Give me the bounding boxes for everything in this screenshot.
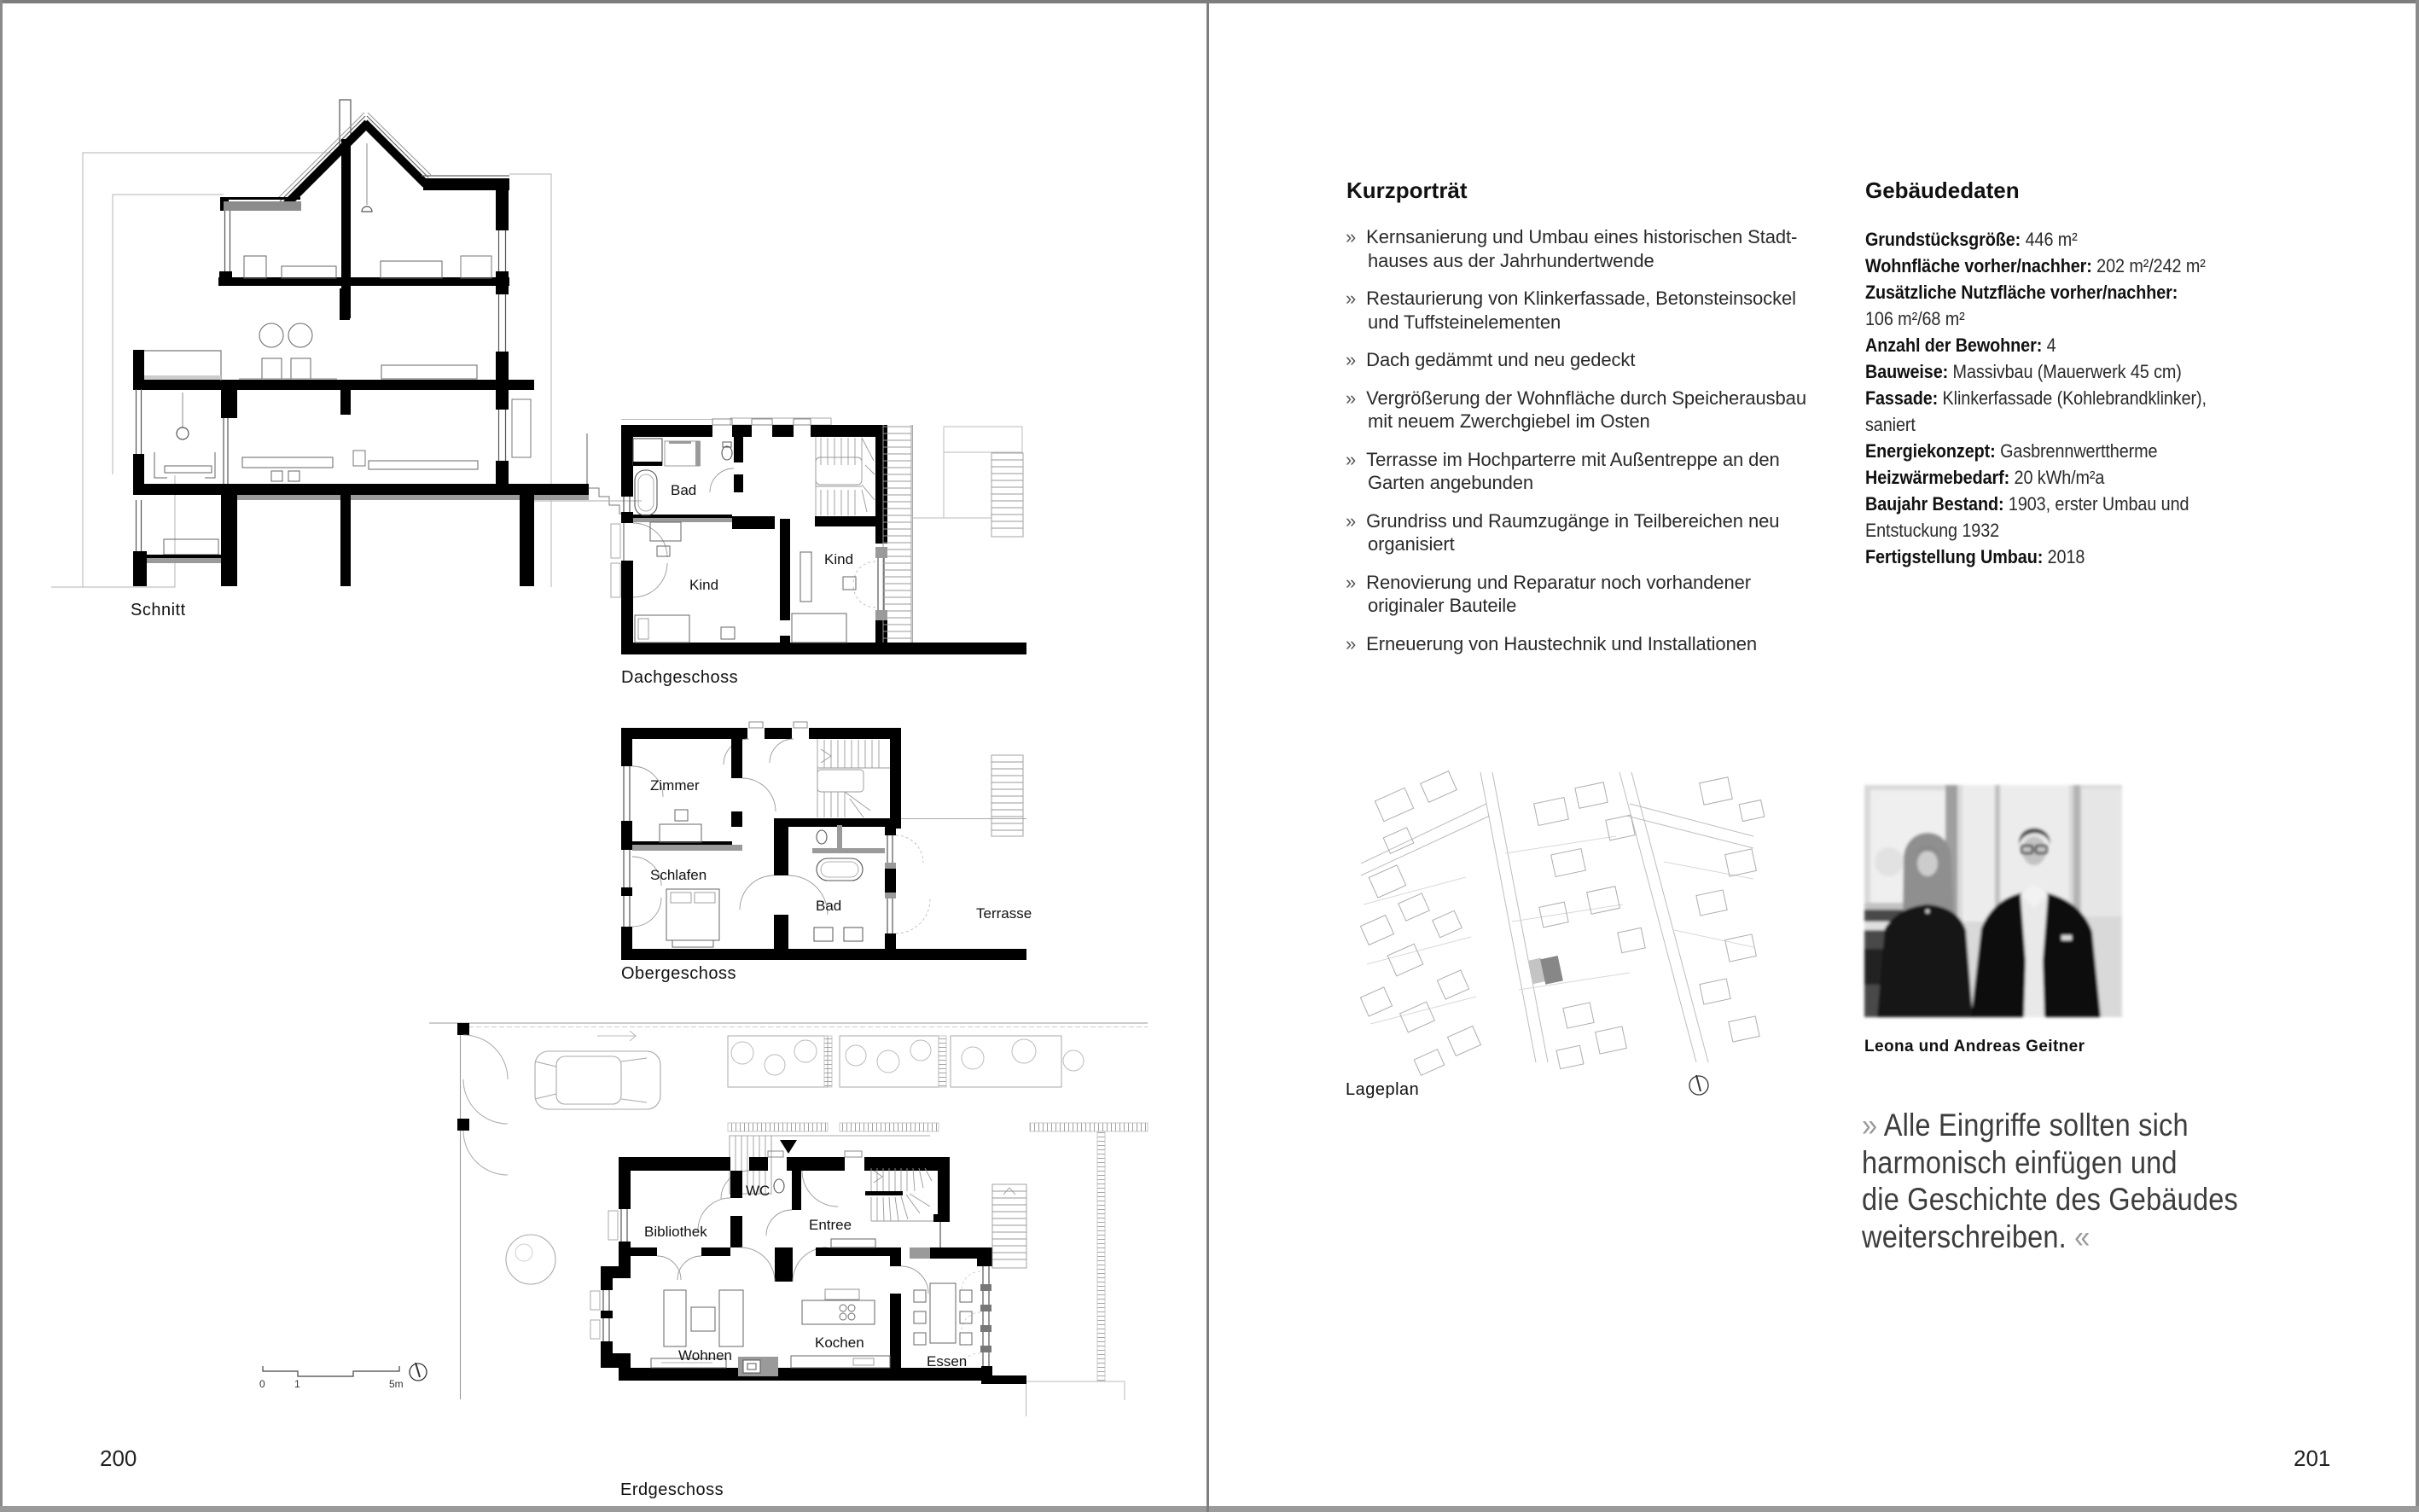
svg-text:Obergeschoss: Obergeschoss <box>621 964 736 983</box>
svg-text:5m: 5m <box>389 1378 404 1390</box>
svg-text:Erdgeschoss: Erdgeschoss <box>620 1480 724 1499</box>
svg-text:Bad: Bad <box>816 898 841 914</box>
svg-text:Terrasse: Terrasse <box>976 905 1032 922</box>
svg-text:Dachgeschoss: Dachgeschoss <box>621 668 738 687</box>
svg-text:0: 0 <box>259 1378 265 1390</box>
svg-text:Kochen: Kochen <box>815 1335 864 1351</box>
svg-text:Kind: Kind <box>824 551 853 567</box>
svg-text:Essen: Essen <box>927 1353 967 1370</box>
svg-text:Kind: Kind <box>689 577 718 593</box>
svg-text:Wohnen: Wohnen <box>678 1347 732 1364</box>
svg-text:Schnitt: Schnitt <box>131 601 186 619</box>
svg-text:WC: WC <box>746 1183 770 1199</box>
svg-text:1: 1 <box>294 1378 300 1390</box>
svg-text:Bibliothek: Bibliothek <box>644 1224 707 1240</box>
svg-text:Zimmer: Zimmer <box>650 777 700 794</box>
svg-text:Entree: Entree <box>809 1217 852 1233</box>
svg-text:Schlafen: Schlafen <box>650 867 707 883</box>
svg-text:Lageplan: Lageplan <box>1346 1080 1419 1099</box>
svg-text:Bad: Bad <box>671 482 696 498</box>
